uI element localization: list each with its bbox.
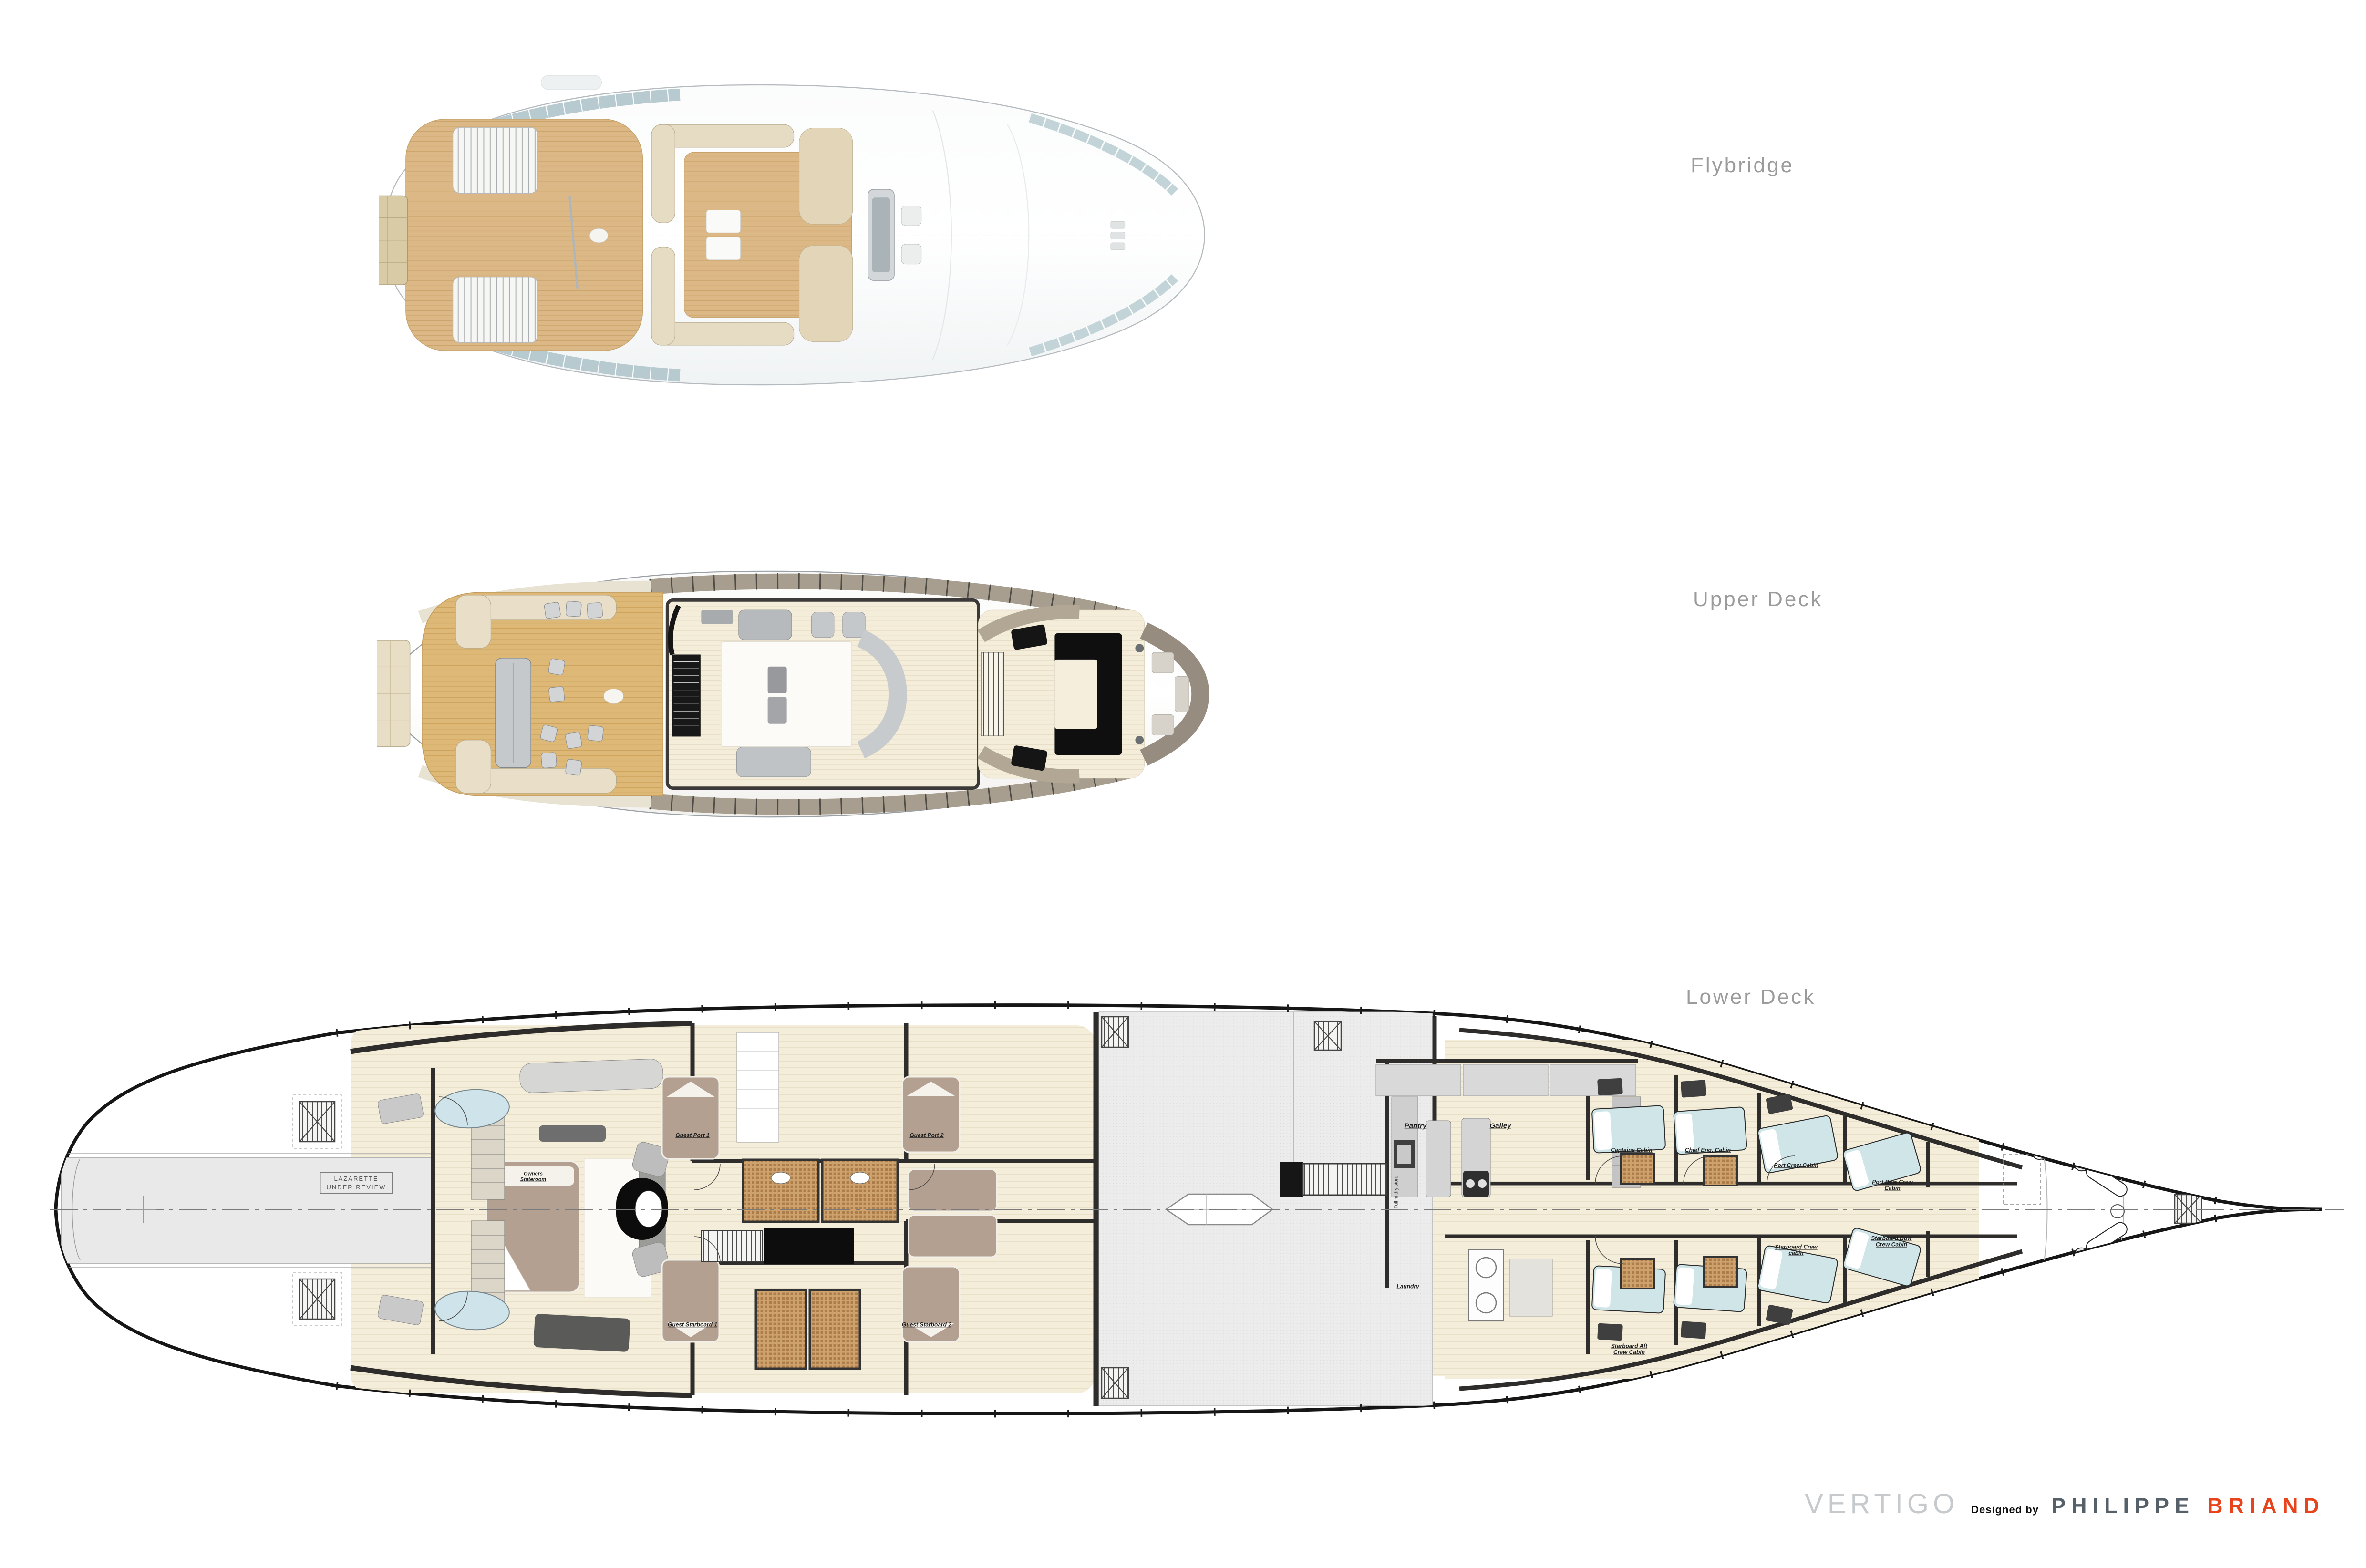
port-sofa — [519, 1059, 663, 1093]
bow-roller-top — [2032, 1144, 2073, 1160]
foredeck-vents — [1111, 221, 1125, 250]
galley-counters-top — [1376, 1064, 1636, 1096]
lower-deck-title: Lower Deck — [1686, 985, 1816, 1009]
port-bench — [539, 1125, 606, 1142]
guest-staircase — [764, 1228, 854, 1264]
galley-sink-1 — [1466, 1179, 1475, 1188]
room-label-guest-port-2: Guest Port 2 — [909, 1132, 943, 1138]
deck-plan-page: Flybridge Upper Deck Lower Deck LAZARETT… — [0, 0, 2366, 1568]
salon-staircase — [672, 655, 701, 737]
flybridge-table-1 — [706, 210, 741, 233]
laundry-machines — [1469, 1249, 1552, 1321]
flybridge-plan-drawing — [379, 12, 1495, 472]
galley-stairs — [1303, 1164, 1386, 1195]
salon-sofa-bottom — [736, 747, 811, 777]
salon-armchair-2 — [843, 612, 865, 638]
brand-logo-text: VERTIGO — [1805, 1488, 1959, 1520]
galley-stair-landing — [1280, 1162, 1303, 1197]
salon-rug — [721, 642, 852, 746]
helm-stair-slats — [981, 652, 1003, 736]
room-label-starboard-crew-cabin: Starboard Crew cabin — [1775, 1244, 1817, 1257]
deck-hatch-aft-bottom — [453, 277, 538, 343]
winch-bottom — [1135, 736, 1144, 744]
radar-antenna — [541, 75, 602, 90]
helm-console-panel — [872, 197, 890, 272]
designer-first-name: PHILIPPE — [2051, 1494, 2195, 1518]
galley-sink-2 — [1478, 1179, 1487, 1188]
room-label-guest-port-1: Guest Port 1 — [675, 1132, 709, 1138]
guest-starboard-2-bed-2 — [909, 1215, 997, 1257]
flybridge-title: Flybridge — [1691, 154, 1794, 177]
room-label-chief-eng-cabin: Chief Eng. Cabin — [1685, 1147, 1731, 1153]
stbd-desk — [533, 1314, 630, 1352]
coffee-table-2 — [768, 697, 787, 723]
guest-stair-slats — [701, 1230, 762, 1261]
room-label-port-crew-cabin: Port Crew Cabin — [1774, 1162, 1818, 1168]
designed-by-text: Designed by — [1971, 1504, 2039, 1516]
room-label-guest-starboard-1: Guest Starboard 1 — [668, 1321, 717, 1328]
room-label-port-bow-crew-cabin: Port Bow Crew Cabin — [1872, 1179, 1912, 1192]
designer-last-name: BRIAND — [2207, 1494, 2325, 1518]
coffee-table-1 — [768, 667, 787, 693]
upper-deck-hull-group — [377, 571, 1208, 817]
bow-roller-bottom — [2032, 1263, 2073, 1279]
room-label-pantry: Pantry — [1405, 1123, 1427, 1131]
room-label-captains-cabin: Captains Cabin — [1611, 1147, 1652, 1153]
cocktail-table — [589, 228, 608, 243]
lower-deck-plan-drawing — [48, 985, 2351, 1424]
room-label-full-ht-dry-store: Full ht dry store — [1394, 1176, 1399, 1209]
helm-seat-2 — [901, 244, 921, 264]
pantry-sink-basin — [1397, 1145, 1411, 1164]
sunpad-top — [799, 128, 853, 225]
salon-sofa-top — [739, 610, 792, 640]
room-label-guest-starboard-2: Guest Starboard 2 — [902, 1321, 951, 1328]
room-label-owners-stateroom: Owners Stateroom — [520, 1171, 546, 1183]
deck-hatch-aft-top — [453, 127, 538, 193]
lower-deck-hull-group — [50, 1005, 2344, 1414]
sunpad-bottom — [799, 246, 853, 342]
lazarette-notice: LAZARETTE UNDER REVIEW — [320, 1172, 393, 1194]
room-label-laundry: Laundry — [1396, 1283, 1419, 1289]
room-label-galley: Galley — [1489, 1123, 1511, 1131]
upper-deck-title: Upper Deck — [1693, 588, 1823, 611]
room-label-starboard-aft-crew-cabin: Starboard Aft Crew Cabin — [1611, 1343, 1647, 1356]
upper-deck-plan-drawing — [377, 565, 1498, 913]
room-label-starboard-bow-crew-cabin: Starboard Bow Crew Cabin — [1871, 1236, 1911, 1248]
helm-console-notch — [1054, 660, 1097, 729]
side-table — [604, 689, 624, 703]
salon-armchair-1 — [812, 612, 834, 638]
guest-port-2-bed-2 — [909, 1169, 997, 1211]
winch-top — [1135, 644, 1144, 652]
flybridge-hull-group — [379, 75, 1205, 385]
footer-brand-bar: VERTIGO Designed by PHILIPPE BRIAND — [1607, 1488, 2325, 1520]
flybridge-table-2 — [706, 237, 741, 260]
helm-seat-1 — [901, 206, 921, 226]
galley-island-1 — [1426, 1121, 1451, 1197]
salon-sideboard — [701, 610, 733, 624]
guest-wardrobe — [737, 1032, 779, 1142]
